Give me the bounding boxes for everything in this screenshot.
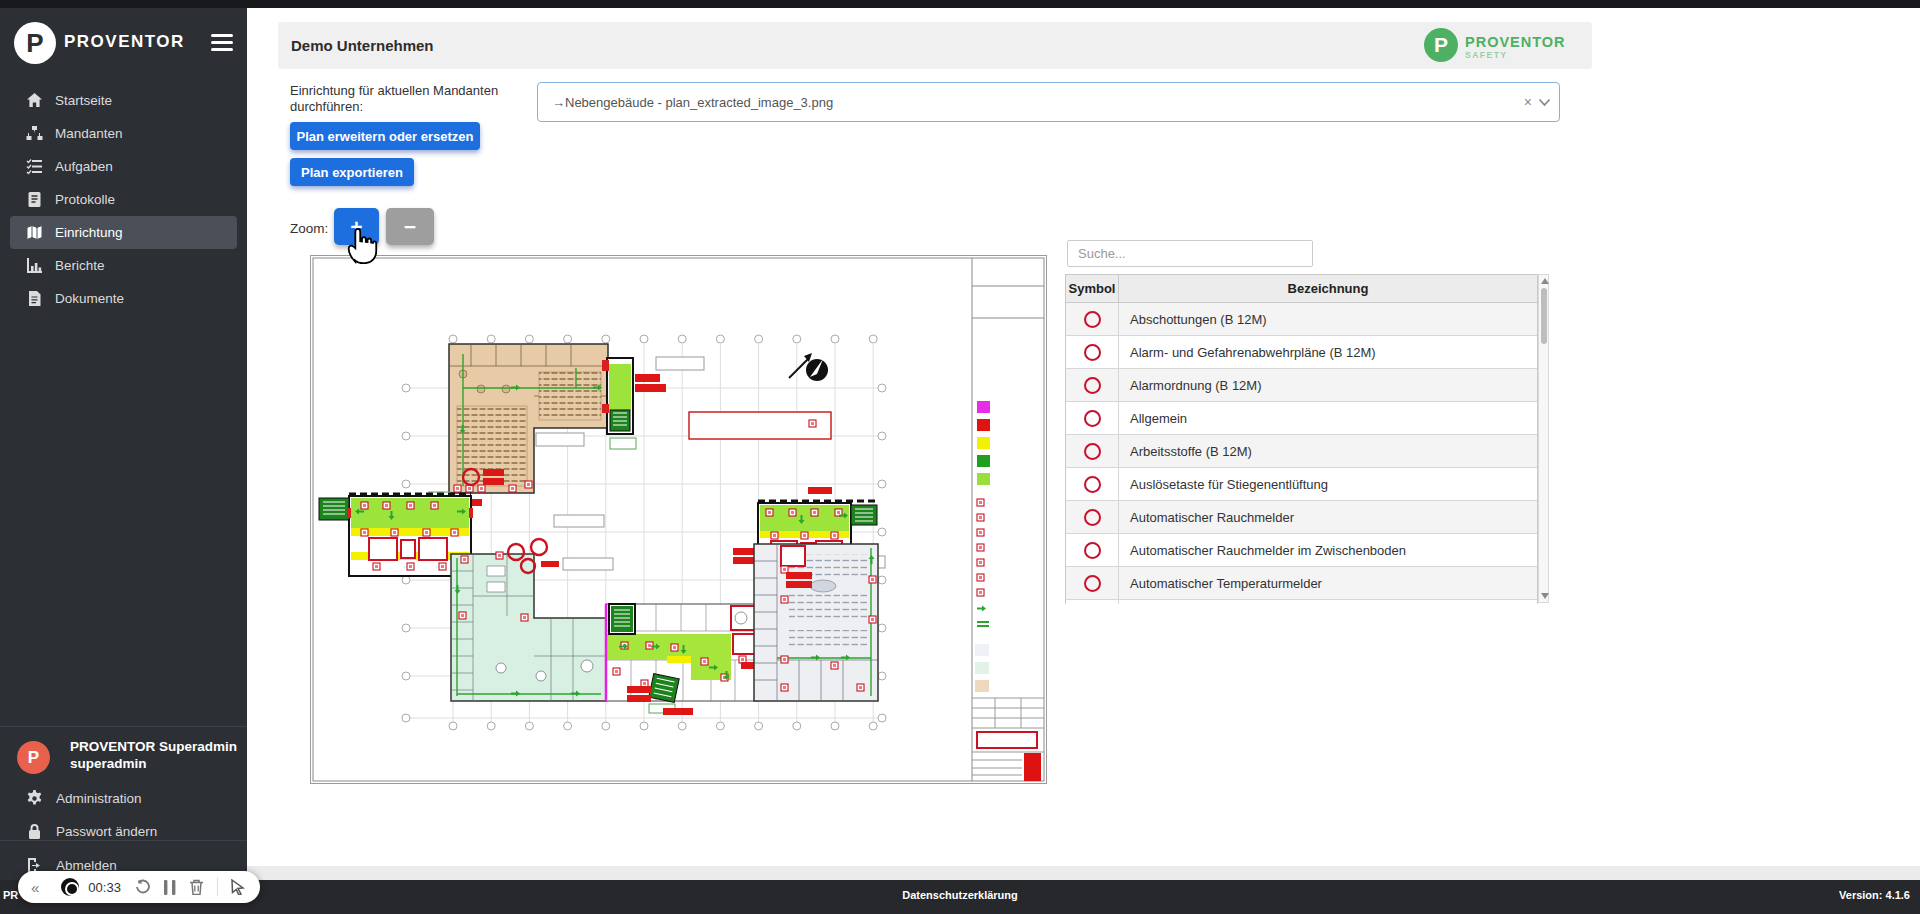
user-username: superadmin — [70, 756, 147, 771]
user-block[interactable]: P PROVENTOR Superadmin superadmin — [0, 726, 247, 727]
symbol-ring-icon — [1084, 476, 1101, 493]
zoom-out-button[interactable]: − — [386, 208, 434, 245]
page-header: Demo Unternehmen P PROVENTOR SAFETY — [278, 22, 1592, 69]
sidebar-item-protokolle[interactable]: Protokolle — [0, 183, 247, 216]
restart-icon[interactable] — [135, 879, 151, 895]
avatar: P — [17, 741, 50, 774]
table-row[interactable]: Automatischer Temperaturmelder — [1066, 567, 1537, 600]
user-name: PROVENTOR Superadmin — [70, 739, 237, 754]
sidebar-item-label: Aufgaben — [55, 159, 113, 174]
symbol-ring-icon — [1084, 542, 1101, 559]
sidebar-item-einrichtung[interactable]: Einrichtung — [10, 216, 237, 249]
table-row[interactable]: Arbeitsstoffe (B 12M) — [1066, 435, 1537, 468]
symbol-label: Automatischer Rauchmelder — [1119, 510, 1537, 525]
table-row[interactable]: Automatischer Rauchmelder im Zwischenbod… — [1066, 534, 1537, 567]
sidebar-item-label: Dokumente — [55, 291, 124, 306]
symbol-label: Alarmordnung (B 12M) — [1119, 378, 1537, 393]
safety-logo-line1: PROVENTOR — [1465, 34, 1566, 50]
bar-chart-icon — [26, 257, 43, 274]
symbol-label: Arbeitsstoffe (B 12M) — [1119, 444, 1537, 459]
proventor-safety-logo: P PROVENTOR SAFETY — [1424, 25, 1584, 66]
sidebar-nav: Startseite Mandanten Aufgaben Protokolle… — [0, 84, 247, 315]
pause-icon[interactable] — [164, 880, 176, 895]
symbol-label: Abschottungen (B 12M) — [1119, 312, 1537, 327]
symbol-ring-icon — [1084, 344, 1101, 361]
sidebar-item-label: Einrichtung — [55, 225, 123, 240]
brand-text: PROVENTOR — [64, 32, 185, 52]
table-row[interactable]: Alarm- und Gefahrenabwehrpläne (B 12M) — [1066, 336, 1537, 369]
symbol-ring-icon — [1084, 410, 1101, 427]
home-icon — [26, 92, 43, 109]
zoom-label: Zoom: — [290, 221, 328, 236]
symbol-ring-icon — [1084, 509, 1101, 526]
plan-select[interactable]: →Nebengebäude - plan_extracted_image_3.p… — [537, 82, 1560, 122]
symbols-table: Symbol Bezeichnung Abschottungen (B 12M)… — [1065, 274, 1549, 604]
plan-export-button[interactable]: Plan exportieren — [290, 158, 414, 186]
list-check-icon — [26, 158, 43, 175]
sidebar-item-label: Startseite — [55, 93, 112, 108]
table-row[interactable]: Abschottungen (B 12M) — [1066, 303, 1537, 336]
subnav-label: Administration — [56, 791, 142, 806]
scroll-down-icon[interactable] — [1541, 593, 1549, 599]
sidebar-item-label: Berichte — [55, 258, 105, 273]
gear-icon — [26, 790, 43, 807]
book-icon — [26, 191, 43, 208]
table-row[interactable]: Allgemein — [1066, 402, 1537, 435]
chevron-down-icon[interactable] — [1538, 98, 1551, 107]
sidebar-item-label: Protokolle — [55, 192, 115, 207]
floor-plan — [311, 256, 1046, 783]
footer-bar: PR Datenschutzerklärung Version: 4.1.6 — [0, 880, 1920, 914]
hamburger-menu-icon[interactable] — [211, 34, 233, 51]
proventor-logo-icon: P — [14, 22, 56, 64]
symbol-ring-icon — [1084, 377, 1101, 394]
horizontal-scrollbar[interactable] — [247, 866, 1920, 880]
symbol-label: Allgemein — [1119, 411, 1537, 426]
symbol-label: Alarm- und Gefahrenabwehrpläne (B 12M) — [1119, 345, 1537, 360]
screen-recorder-toolbar: « 00:33 — [18, 871, 260, 903]
privacy-link[interactable]: Datenschutzerklärung — [0, 889, 1920, 901]
sidebar-item-startseite[interactable]: Startseite — [0, 84, 247, 117]
center-section — [606, 604, 769, 715]
table-scrollbar[interactable] — [1538, 274, 1549, 603]
wing-bottom-right — [754, 544, 878, 701]
browser-top-strip — [0, 0, 1920, 8]
table-row[interactable] — [1066, 600, 1537, 604]
sidebar-item-administration[interactable]: Administration — [0, 783, 247, 813]
symbol-label: Auslösetaste für Stiegenentlüftung — [1119, 477, 1537, 492]
symbol-ring-icon — [1084, 575, 1101, 592]
page-title: Demo Unternehmen — [291, 37, 434, 54]
document-icon — [26, 290, 43, 307]
table-row[interactable]: Automatischer Rauchmelder — [1066, 501, 1537, 534]
sidebar-item-dokumente[interactable]: Dokumente — [0, 282, 247, 315]
safety-logo-line2: SAFETY — [1465, 50, 1508, 60]
symbol-ring-icon — [1084, 311, 1101, 328]
zoom-in-button[interactable]: + — [334, 208, 379, 245]
subnav-label: Passwort ändern — [56, 824, 157, 839]
floor-plan-canvas[interactable] — [310, 255, 1047, 784]
lock-icon — [26, 823, 43, 840]
plan-select-value: →Nebengebäude - plan_extracted_image_3.p… — [552, 95, 833, 110]
version-label: Version: 4.1.6 — [1839, 889, 1910, 901]
mandant-instruction-label: Einrichtung für aktuellen Mandanten durc… — [290, 83, 550, 115]
sidebar: P PROVENTOR Startseite Mandanten Aufgabe… — [0, 8, 247, 880]
sidebar-item-label: Mandanten — [55, 126, 123, 141]
sidebar-divider — [0, 840, 247, 841]
table-row[interactable]: Auslösetaste für Stiegenentlüftung — [1066, 468, 1537, 501]
sidebar-item-mandanten[interactable]: Mandanten — [0, 117, 247, 150]
record-indicator-icon[interactable] — [61, 878, 79, 896]
symbol-label: Automatischer Rauchmelder im Zwischenbod… — [1119, 543, 1537, 558]
table-header: Symbol Bezeichnung — [1066, 275, 1537, 303]
safety-logo-icon: P — [1424, 28, 1458, 62]
plan-extend-button[interactable]: Plan erweitern oder ersetzen — [290, 122, 480, 150]
scrollbar-thumb[interactable] — [1541, 288, 1547, 344]
toolbar-divider — [217, 878, 218, 896]
sidebar-item-passwort-aendern[interactable]: Passwort ändern — [0, 816, 247, 846]
map-icon — [26, 224, 43, 241]
search-input[interactable] — [1067, 240, 1313, 267]
scroll-up-icon[interactable] — [1541, 278, 1549, 284]
sitemap-icon — [26, 125, 43, 142]
collapse-icon[interactable]: « — [31, 879, 39, 896]
cursor-pointer-icon[interactable] — [230, 879, 245, 895]
symbol-ring-icon — [1084, 443, 1101, 460]
symbol-label: Automatischer Temperaturmelder — [1119, 576, 1537, 591]
column-header-symbol[interactable]: Symbol — [1066, 275, 1119, 302]
trash-icon[interactable] — [189, 879, 204, 895]
brand-row: P PROVENTOR — [0, 14, 247, 76]
clear-selection-icon[interactable]: × — [1524, 94, 1532, 110]
table-row[interactable]: Alarmordnung (B 12M) — [1066, 369, 1537, 402]
recording-time: 00:33 — [88, 880, 121, 895]
sidebar-item-berichte[interactable]: Berichte — [0, 249, 247, 282]
sidebar-item-aufgaben[interactable]: Aufgaben — [0, 150, 247, 183]
column-header-bezeichnung[interactable]: Bezeichnung — [1119, 275, 1537, 302]
